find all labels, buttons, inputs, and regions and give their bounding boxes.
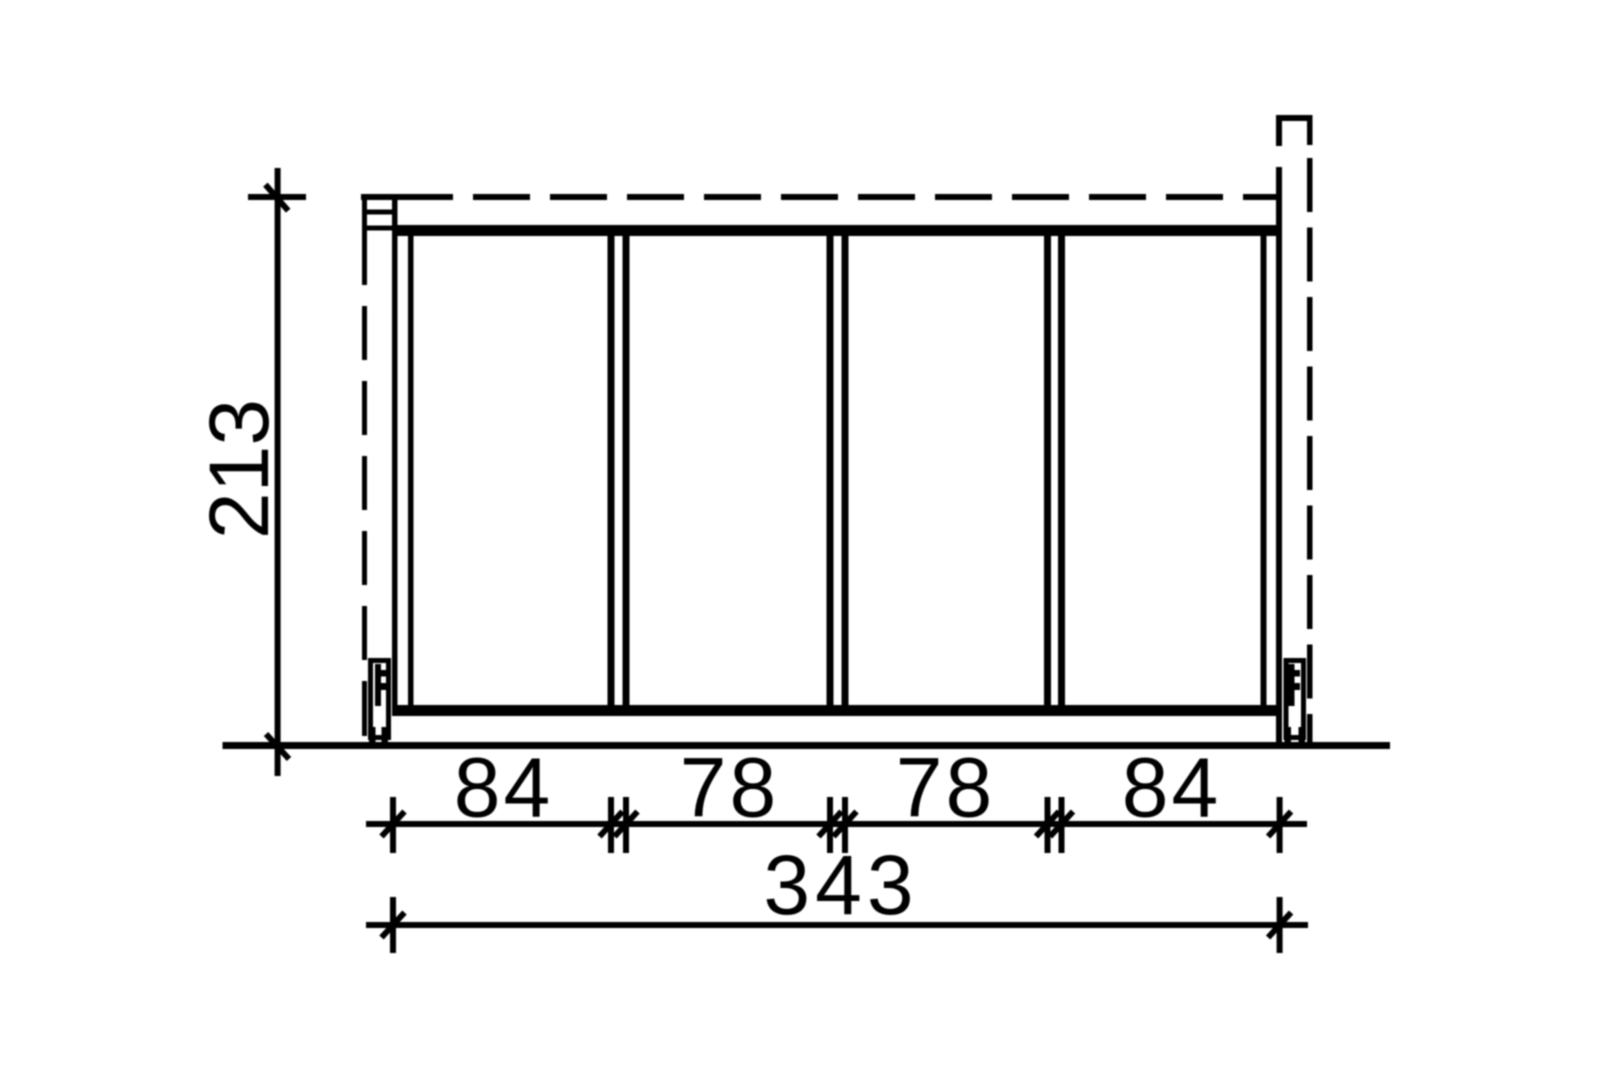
svg-text:78: 78 [896,741,995,835]
svg-text:213: 213 [192,399,286,539]
svg-text:84: 84 [1122,741,1221,835]
svg-text:78: 78 [680,741,779,835]
svg-text:84: 84 [454,741,553,835]
svg-text:343: 343 [763,838,918,932]
